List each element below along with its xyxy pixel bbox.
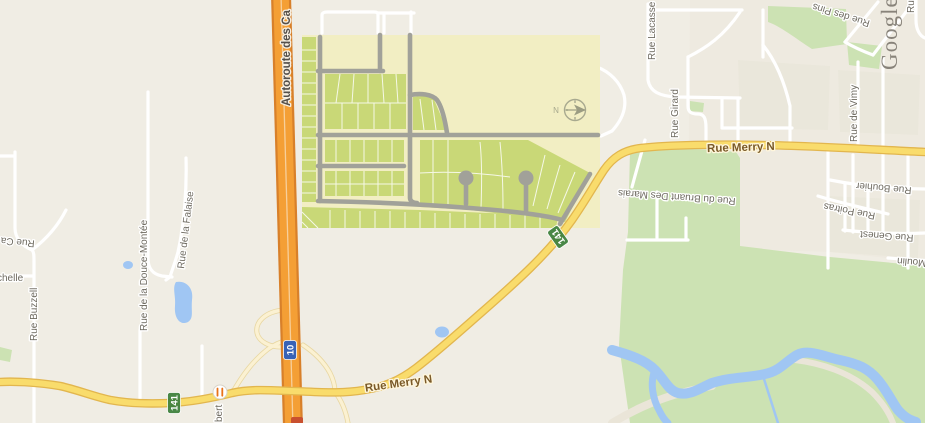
- development-plan-overlay: N: [302, 35, 600, 228]
- cul-de-sac: [459, 171, 474, 186]
- compass-icon: [565, 100, 587, 121]
- shield-141-west-label: 141: [170, 394, 181, 411]
- map-canvas[interactable]: N 141 141: [0, 0, 925, 423]
- google-watermark[interactable]: Google: [877, 0, 902, 70]
- label-buzzell: Rue Buzzell: [29, 288, 40, 341]
- shield-partial-bottom: [291, 417, 303, 423]
- restaurant-poi-icon[interactable]: [213, 385, 227, 399]
- label-girard: Rue Girard: [670, 89, 681, 138]
- shield-autoroute-10: 10: [284, 341, 297, 360]
- label-bert-partial: bert: [214, 405, 225, 422]
- label-vimy: Rue de Vimy: [849, 85, 860, 142]
- label-autoroute: Autoroute des Ca: [281, 10, 293, 106]
- label-merry-right: Rue Merry N: [707, 141, 775, 155]
- label-lacasse: Rue Lacasse: [647, 1, 658, 60]
- shield-141-west: 141: [168, 393, 181, 414]
- map-svg: N 141 141: [0, 0, 925, 423]
- compass-north-label: N: [553, 106, 559, 115]
- label-douce-montee: Rue de la Douce-Montée: [139, 219, 150, 331]
- label-moulin: Moulin: [897, 255, 925, 269]
- shield-10-label: 10: [286, 345, 297, 356]
- label-chelle-partial: chelle: [0, 273, 24, 284]
- cul-de-sac: [519, 171, 534, 186]
- label-ru-partial: Ru: [906, 0, 917, 13]
